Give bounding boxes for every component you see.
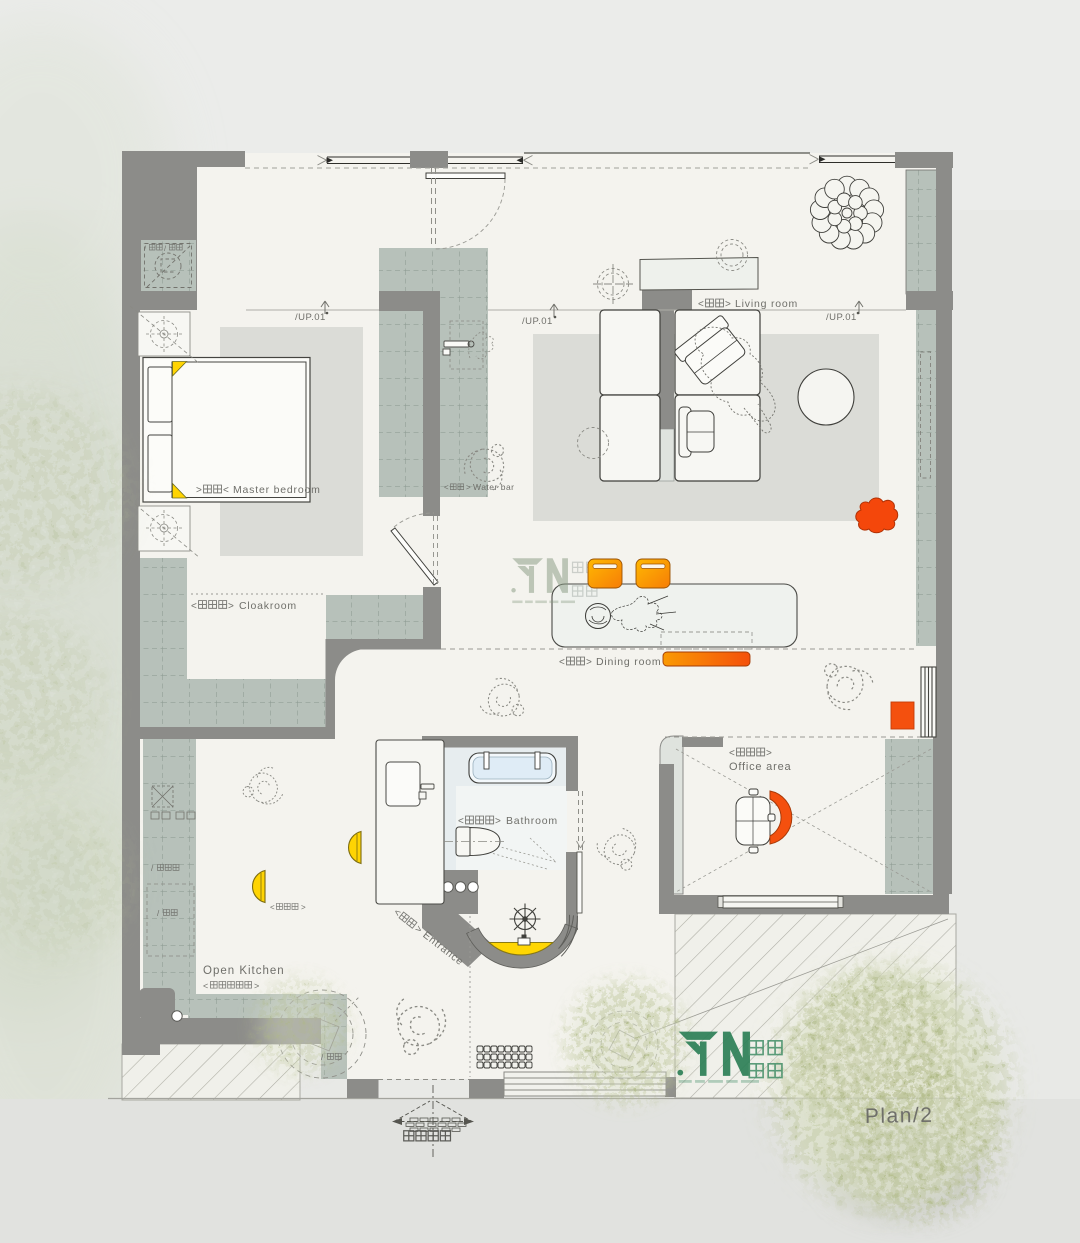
svg-text:/UP.01: /UP.01: [522, 316, 553, 327]
svg-text:<: <: [444, 483, 449, 492]
svg-text:>: >: [725, 299, 731, 310]
svg-text:<: <: [458, 816, 464, 827]
svg-text:>: >: [228, 601, 234, 612]
svg-text:/UP.01: /UP.01: [826, 312, 857, 323]
svg-text:<: <: [223, 485, 229, 496]
svg-text:<: <: [191, 601, 197, 612]
svg-text:<: <: [203, 981, 208, 991]
svg-text:>: >: [196, 485, 202, 496]
svg-text:>: >: [766, 748, 772, 759]
svg-text:Cloakroom: Cloakroom: [239, 600, 297, 612]
svg-text:>: >: [495, 816, 501, 827]
svg-text:<: <: [729, 748, 735, 759]
svg-text:Office area: Office area: [729, 761, 791, 773]
svg-text:>: >: [301, 903, 306, 912]
svg-text:Bathroom: Bathroom: [506, 815, 558, 827]
svg-text:>: >: [466, 483, 471, 492]
svg-text:<: <: [270, 903, 275, 912]
svg-text:<: <: [559, 657, 565, 668]
svg-text:>: >: [254, 981, 259, 991]
svg-text:Master bedroom: Master bedroom: [233, 484, 321, 496]
svg-text:Water bar: Water bar: [473, 482, 515, 492]
svg-text:Plan/2: Plan/2: [865, 1104, 934, 1128]
svg-text:>: >: [586, 657, 592, 668]
svg-text:Open Kitchen: Open Kitchen: [203, 965, 285, 977]
svg-text:<: <: [698, 299, 704, 310]
svg-text:Dining room: Dining room: [596, 656, 661, 668]
svg-text:/UP.01: /UP.01: [295, 312, 326, 323]
svg-text:Living room: Living room: [735, 298, 798, 310]
